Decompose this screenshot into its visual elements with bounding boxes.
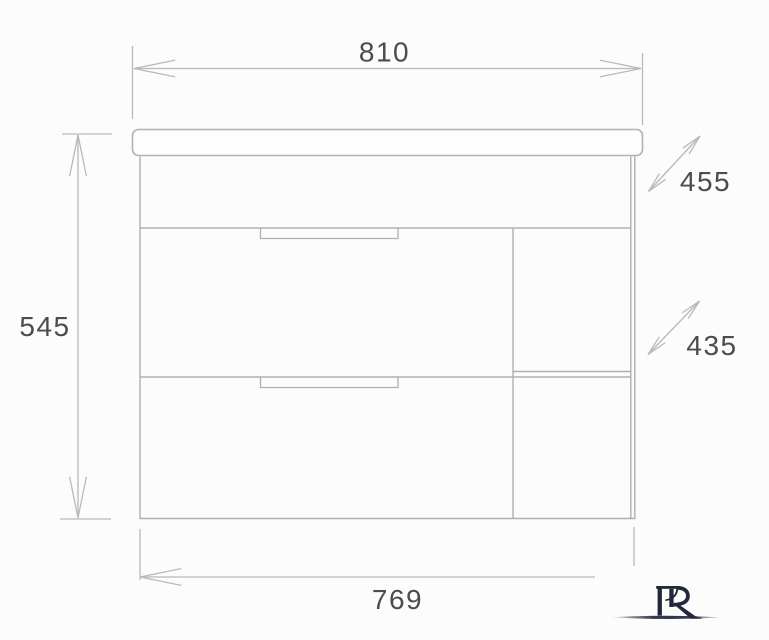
- svg-text:435: 435: [686, 330, 737, 361]
- svg-text:769: 769: [372, 584, 423, 615]
- svg-text:810: 810: [359, 37, 410, 68]
- svg-text:455: 455: [680, 166, 731, 197]
- svg-text:545: 545: [19, 311, 70, 342]
